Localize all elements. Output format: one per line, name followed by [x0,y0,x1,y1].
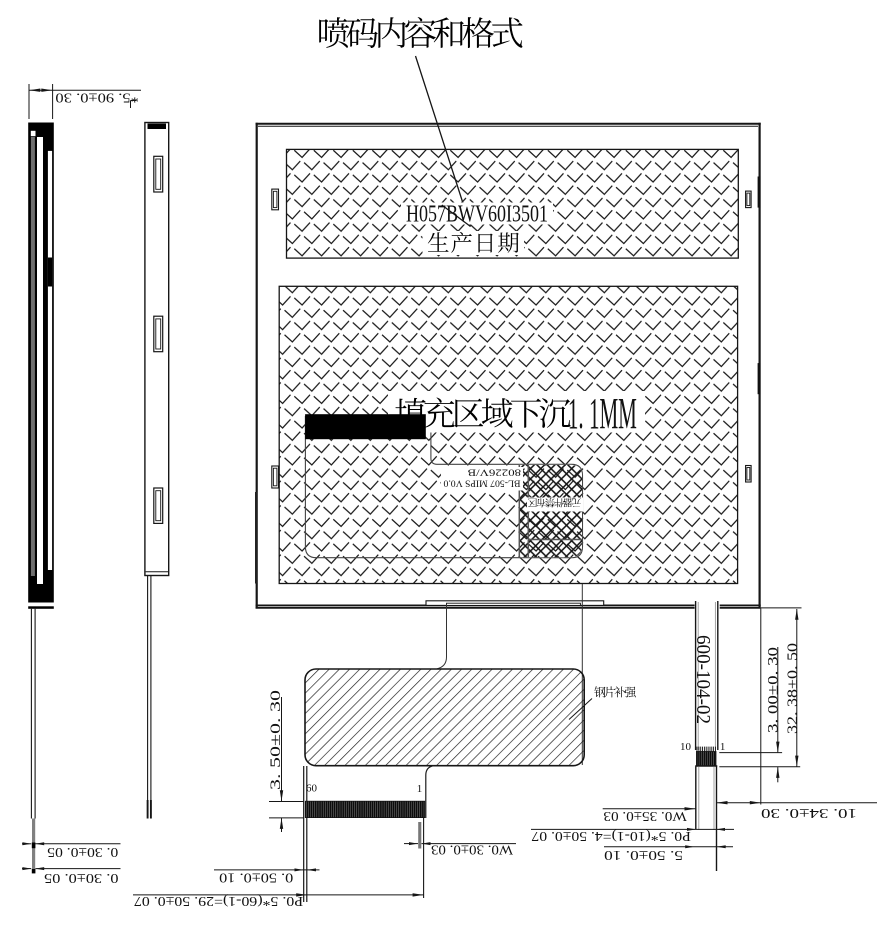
svg-text:60: 60 [306,783,318,795]
svg-text:W0. 30±0. 03: W0. 30±0. 03 [431,843,513,858]
svg-text:BL-507 MIPS V0.0: BL-507 MIPS V0.0 [443,478,520,488]
svg-text:*5. 90±0. 30: *5. 90±0. 30 [55,90,139,105]
svg-text:1: 1 [720,741,726,753]
svg-text:3. 00±0. 30: 3. 00±0. 30 [765,647,781,733]
svg-text:0. 50±0. 10: 0. 50±0. 10 [219,870,293,885]
svg-text:600-104-02: 600-104-02 [692,635,714,724]
svg-text:P0. 5*(60-1)=29. 50±0. 07: P0. 5*(60-1)=29. 50±0. 07 [134,894,303,909]
svg-text:32. 38±0. 50: 32. 38±0. 50 [785,643,801,734]
svg-text:10: 10 [680,741,692,753]
svg-text:3. 50±0. 30: 3. 50±0. 30 [268,690,284,790]
svg-text:1. 1MM: 1. 1MM [568,389,637,438]
svg-text:0. 30±0. 05: 0. 30±0. 05 [44,871,119,886]
svg-text:10. 34±0. 30: 10. 34±0. 30 [761,806,857,821]
svg-text:1: 1 [417,783,423,795]
svg-text:0. 30±0. 05: 0. 30±0. 05 [47,845,118,860]
svg-text:W0. 35±0. 03: W0. 35±0. 03 [603,809,687,824]
svg-text:H057BWV60I3501: H057BWV60I3501 [406,201,548,227]
svg-text:P0. 5*(10-1)=4. 50±0. 07: P0. 5*(10-1)=4. 50±0. 07 [531,829,691,844]
svg-text:80226V/B: 80226V/B [468,467,522,477]
svg-text:5. 50±0. 10: 5. 50±0. 10 [604,848,683,863]
